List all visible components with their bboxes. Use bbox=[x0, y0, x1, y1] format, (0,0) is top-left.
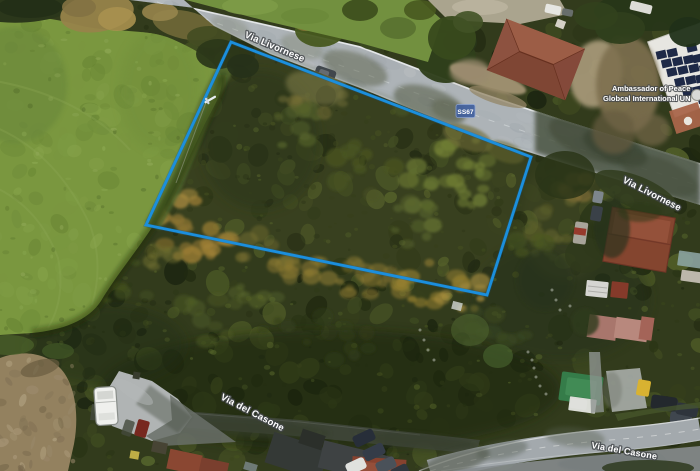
svg-text:Globcal International UN: Globcal International UN bbox=[603, 94, 691, 103]
svg-text:Ambassador of Peace: Ambassador of Peace bbox=[612, 84, 690, 93]
svg-text:SS67: SS67 bbox=[457, 109, 473, 116]
